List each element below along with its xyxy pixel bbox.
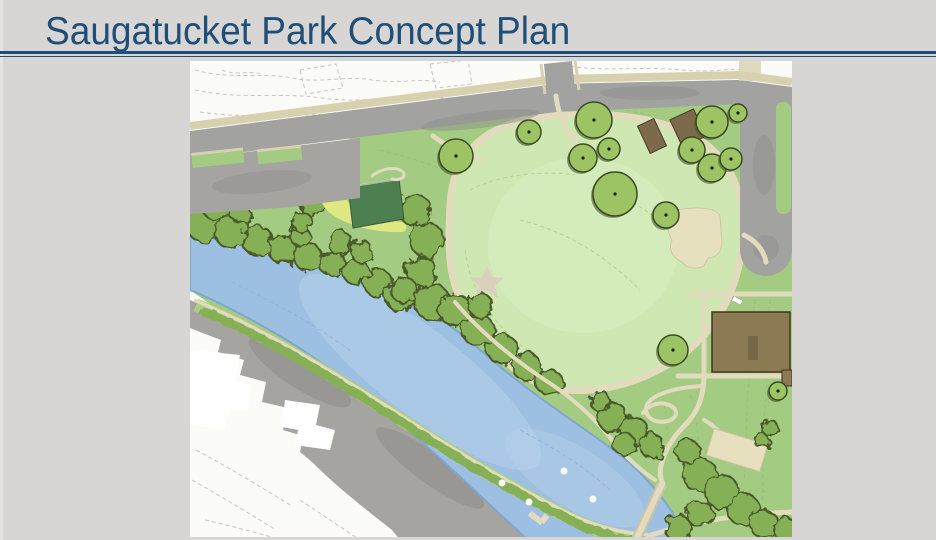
slide-title-text: Saugatucket Park Concept Plan bbox=[45, 12, 570, 53]
slide-title: Saugatucket Park Concept Plan bbox=[45, 12, 598, 53]
street-north-branch bbox=[544, 61, 575, 94]
title-underline bbox=[0, 51, 936, 57]
title-underline-thin bbox=[0, 56, 936, 57]
concept-plan-map bbox=[190, 61, 792, 537]
lawn-highlight bbox=[488, 157, 678, 333]
presentation-slide: Saugatucket Park Concept Plan bbox=[0, 0, 936, 540]
planted-median-island bbox=[776, 102, 791, 214]
north-driveway bbox=[739, 61, 761, 81]
slide-left-edge bbox=[0, 0, 3, 540]
